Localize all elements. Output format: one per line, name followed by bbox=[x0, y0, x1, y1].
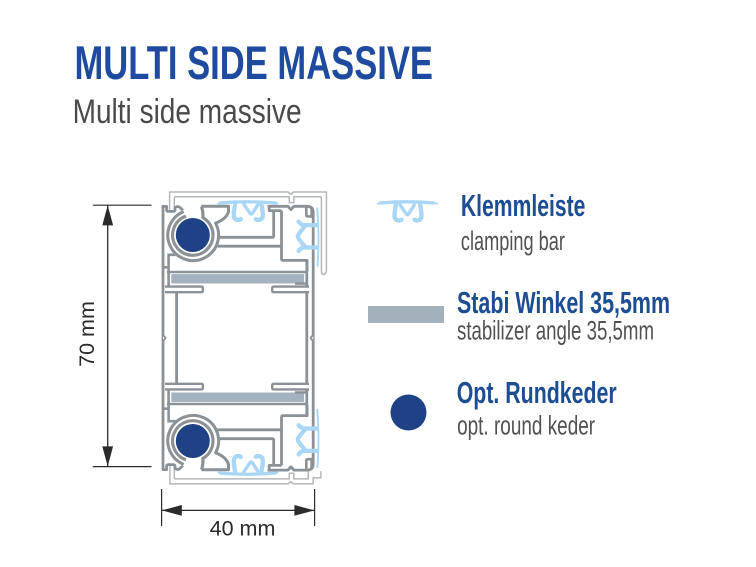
svg-text:Opt. Rundkeder: Opt. Rundkeder bbox=[457, 375, 617, 410]
svg-text:opt. round keder: opt. round keder bbox=[457, 411, 595, 441]
svg-text:Klemmleiste: Klemmleiste bbox=[461, 188, 586, 223]
svg-text:70 mm: 70 mm bbox=[75, 301, 99, 367]
svg-text:40 mm: 40 mm bbox=[210, 517, 276, 541]
svg-text:MULTI SIDE MASSIVE: MULTI SIDE MASSIVE bbox=[75, 36, 434, 89]
svg-text:Multi side massive: Multi side massive bbox=[73, 93, 302, 131]
svg-text:clamping bar: clamping bar bbox=[461, 226, 565, 256]
svg-text:stabilizer angle 35,5mm: stabilizer angle 35,5mm bbox=[457, 316, 654, 346]
